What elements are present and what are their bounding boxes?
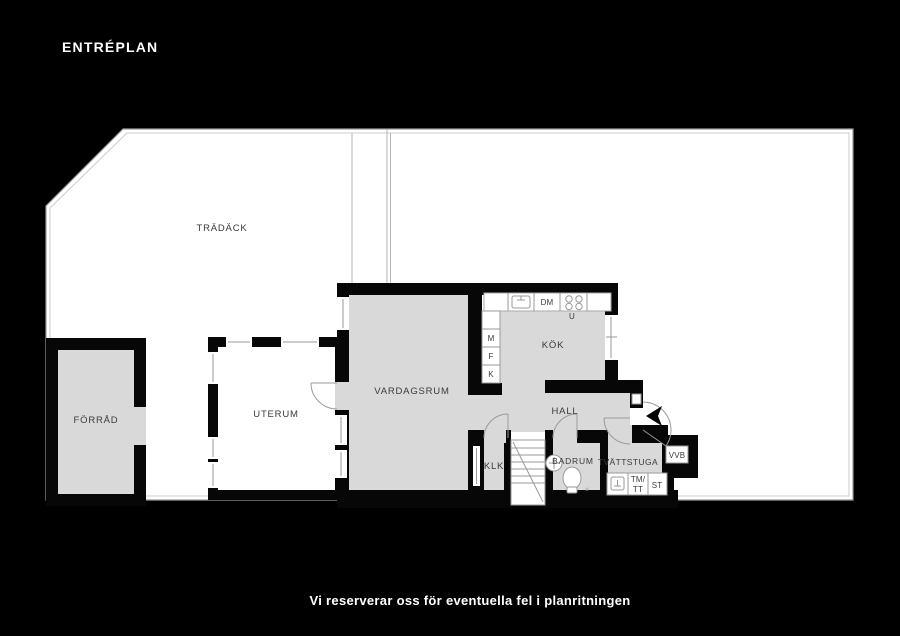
laundry-appliances: TM/ TT ST (607, 473, 667, 495)
fridge-label: K (488, 370, 494, 379)
forrad-door-opening (132, 407, 146, 445)
freezer-label: F (488, 352, 493, 361)
room-label-uterum: UTERUM (253, 409, 298, 420)
wall-cabinet-box (632, 394, 641, 404)
klk-door-opening (484, 430, 506, 443)
washer-dryer-label-line2: TT (633, 485, 643, 494)
uterum-door-opening (335, 382, 349, 410)
room-label-badrum: BADRUM (552, 456, 594, 466)
stairs (511, 440, 545, 505)
room-label-kok: KÖK (542, 340, 564, 351)
st-label: ST (652, 481, 663, 490)
floor-plan: ENTRÉPLAN TRÄDÄCK FÖRRÅD UTERUM (0, 0, 900, 636)
footer-disclaimer: Vi reserverar oss för eventuella fel i p… (310, 593, 631, 608)
page-title: ENTRÉPLAN (62, 39, 158, 55)
room-label-hall: HALL (552, 406, 579, 417)
room-label-tradack: TRÄDÄCK (197, 223, 248, 234)
room-forrad: FÖRRÅD (46, 338, 146, 506)
floor-plan-page: ENTRÉPLAN TRÄDÄCK FÖRRÅD UTERUM (0, 0, 900, 636)
badrum-door-opening (553, 430, 577, 443)
kitchen-sink-icon (512, 296, 530, 308)
washer-dryer-label-line1: TM/ (631, 475, 646, 484)
micro-label: M (488, 334, 495, 343)
room-uterum: UTERUM (208, 337, 347, 500)
room-label-vardagsrum: VARDAGSRUM (374, 386, 449, 397)
oven-label: U (569, 312, 575, 321)
dishwasher-label: DM (541, 298, 554, 307)
room-label-tvattstuga: TVÄTTSTUGA (598, 457, 658, 467)
tvattstuga-door-opening (608, 425, 632, 443)
room-label-klk: KLK (484, 461, 504, 472)
vvb-label: VVB (669, 451, 686, 460)
laundry-sink-icon (611, 477, 624, 490)
fridge-freezer-column: M F K (482, 311, 500, 383)
room-label-forrad: FÖRRÅD (74, 415, 119, 426)
